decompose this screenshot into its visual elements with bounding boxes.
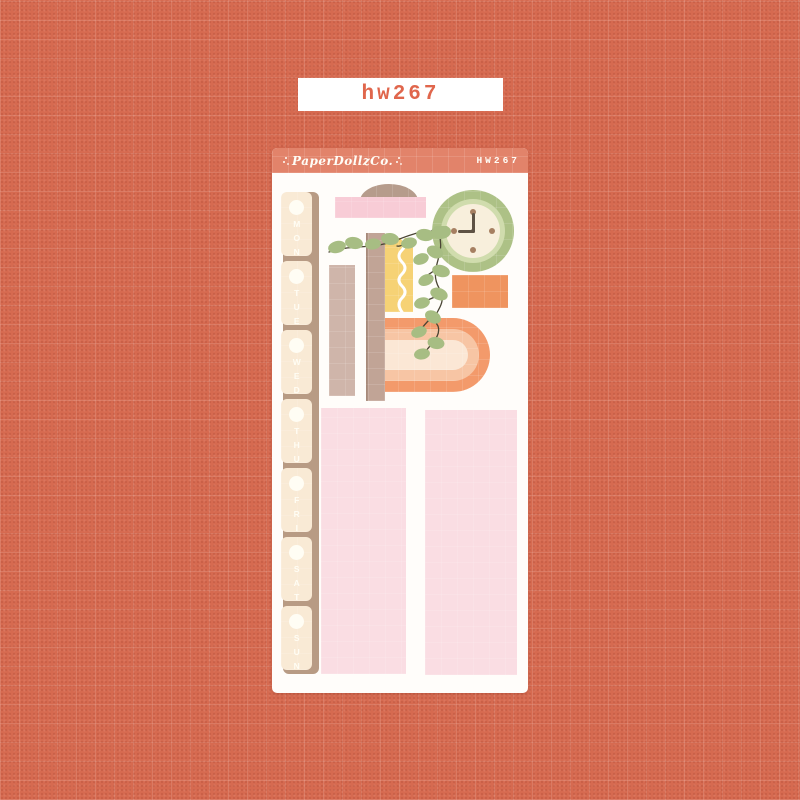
sticker-sheet: PaperDollzCo. HW267 MONTUEWEDTHUFRISATSU…	[272, 148, 528, 693]
tab-dot-icon	[289, 476, 304, 491]
tab-label: THU	[292, 426, 301, 468]
pink-washi-band-sticker	[335, 197, 426, 218]
day-tab-fri: FRI	[281, 468, 312, 532]
day-tab-thu: THU	[281, 399, 312, 463]
tab-dot-icon	[289, 407, 304, 422]
tab-label: WED	[292, 357, 301, 399]
sparkle-icon	[283, 155, 289, 165]
clock-marker-9	[451, 228, 457, 234]
rounded-rainbow-sticker	[382, 318, 490, 392]
clock-marker-6	[470, 247, 476, 253]
tab-label: FRI	[292, 495, 301, 537]
tab-dot-icon	[289, 200, 304, 215]
day-tab-tue: TUE	[281, 261, 312, 325]
rainbow-inner-band	[382, 340, 468, 370]
sheet-sku-text: HW267	[476, 155, 520, 166]
sparkle-icon	[396, 155, 402, 165]
tab-dot-icon	[289, 338, 304, 353]
orange-box-sticker	[452, 275, 508, 308]
tab-label: TUE	[292, 288, 301, 330]
tab-label: SUN	[292, 633, 301, 675]
sku-label-text: hw267	[361, 83, 439, 106]
tab-dot-icon	[289, 614, 304, 629]
clock-pivot	[471, 229, 475, 233]
pink-full-box-right-sticker	[425, 410, 517, 675]
wavy-line-icon	[396, 238, 408, 312]
tab-label: MON	[292, 219, 301, 261]
tab-label: SAT	[292, 564, 301, 606]
tab-dot-icon	[289, 269, 304, 284]
day-tab-sun: SUN	[281, 606, 312, 670]
brand-text: PaperDollzCo.	[292, 154, 393, 168]
washi-strip-wide-sticker	[329, 265, 355, 396]
day-tab-sat: SAT	[281, 537, 312, 601]
sku-label-card: hw267	[298, 78, 503, 111]
wall-clock-icon	[432, 190, 514, 272]
sheet-header-bar: PaperDollzCo. HW267	[272, 148, 528, 173]
washi-strip-narrow-sticker	[366, 233, 385, 401]
day-tab-wed: WED	[281, 330, 312, 394]
brand-logo: PaperDollzCo.	[280, 154, 405, 168]
yellow-notepad-sticker	[382, 238, 413, 312]
day-tab-mon: MON	[281, 192, 312, 256]
clock-marker-3	[489, 228, 495, 234]
tab-dot-icon	[289, 545, 304, 560]
pink-full-box-left-sticker	[321, 408, 406, 674]
